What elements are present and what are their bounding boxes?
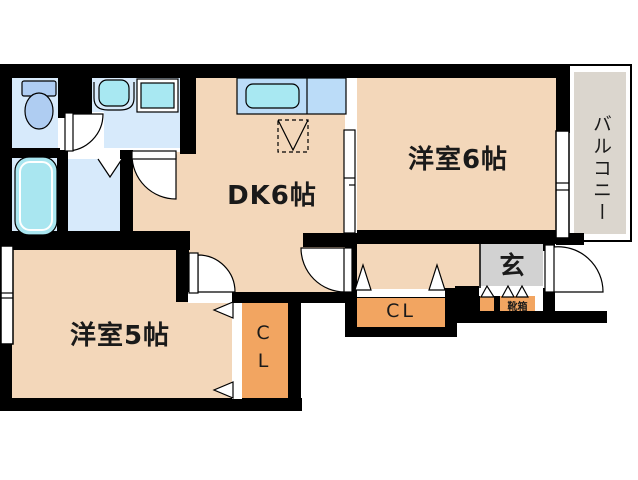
- dk-label: DK6帖: [196, 175, 348, 212]
- dk-floor: [196, 78, 345, 247]
- wall-left-lower: [0, 238, 12, 410]
- shoe-box-track: [479, 286, 543, 296]
- wall-toilet-divider: [58, 64, 92, 118]
- wall-toilet-bottom: [0, 148, 60, 158]
- closet-bedroom5-label: CL: [252, 308, 274, 392]
- wall-washroom-right: [120, 150, 133, 238]
- entry-door-arc: [553, 247, 603, 292]
- wall-entry-post: [543, 288, 555, 322]
- shoe-box-label: 靴箱: [500, 298, 535, 313]
- washroom-lower-floor: [68, 150, 120, 238]
- closet-bedroom5-track: [232, 302, 242, 400]
- bedroom6-label: 洋室6帖: [360, 139, 556, 176]
- bedroom5-label: 洋室5帖: [20, 315, 220, 352]
- closet-hall-label: CL: [357, 300, 445, 322]
- washroom-floor: [92, 78, 180, 148]
- wall-bedroom6-right-dn: [556, 233, 584, 245]
- bedroom5-door-threshold: [188, 292, 232, 303]
- shoe-box-left-fill: [479, 296, 494, 312]
- wall-closetH-bottom: [345, 327, 457, 337]
- wall-bottom-left: [0, 398, 302, 411]
- balcony-label: バルコニー: [588, 94, 615, 244]
- wall-bedroom6-right-up: [556, 64, 570, 133]
- hallway-east-floor: [357, 244, 480, 290]
- wall-left-band: [0, 231, 190, 250]
- wall-bedroom6-bottom: [357, 230, 558, 244]
- wall-hall-divider: [345, 233, 357, 337]
- entry-door-leaf: [545, 245, 554, 292]
- entrance-label: 玄: [482, 246, 542, 282]
- wall-hall-chunk: [455, 286, 480, 313]
- wall-washroom-dk: [180, 64, 196, 154]
- closet-hall-track: [357, 289, 445, 298]
- wall-closet5-right: [288, 292, 301, 410]
- washroom-fold-track: [68, 148, 120, 159]
- toilet-room-floor: [12, 78, 58, 150]
- wall-entry-hinge: [543, 242, 555, 251]
- bathroom-floor: [12, 150, 57, 238]
- floor-plan: DK6帖 洋室6帖 洋室5帖 バルコニー 玄 靴箱 CL CL: [0, 0, 638, 480]
- wall-bath-divider: [57, 150, 68, 238]
